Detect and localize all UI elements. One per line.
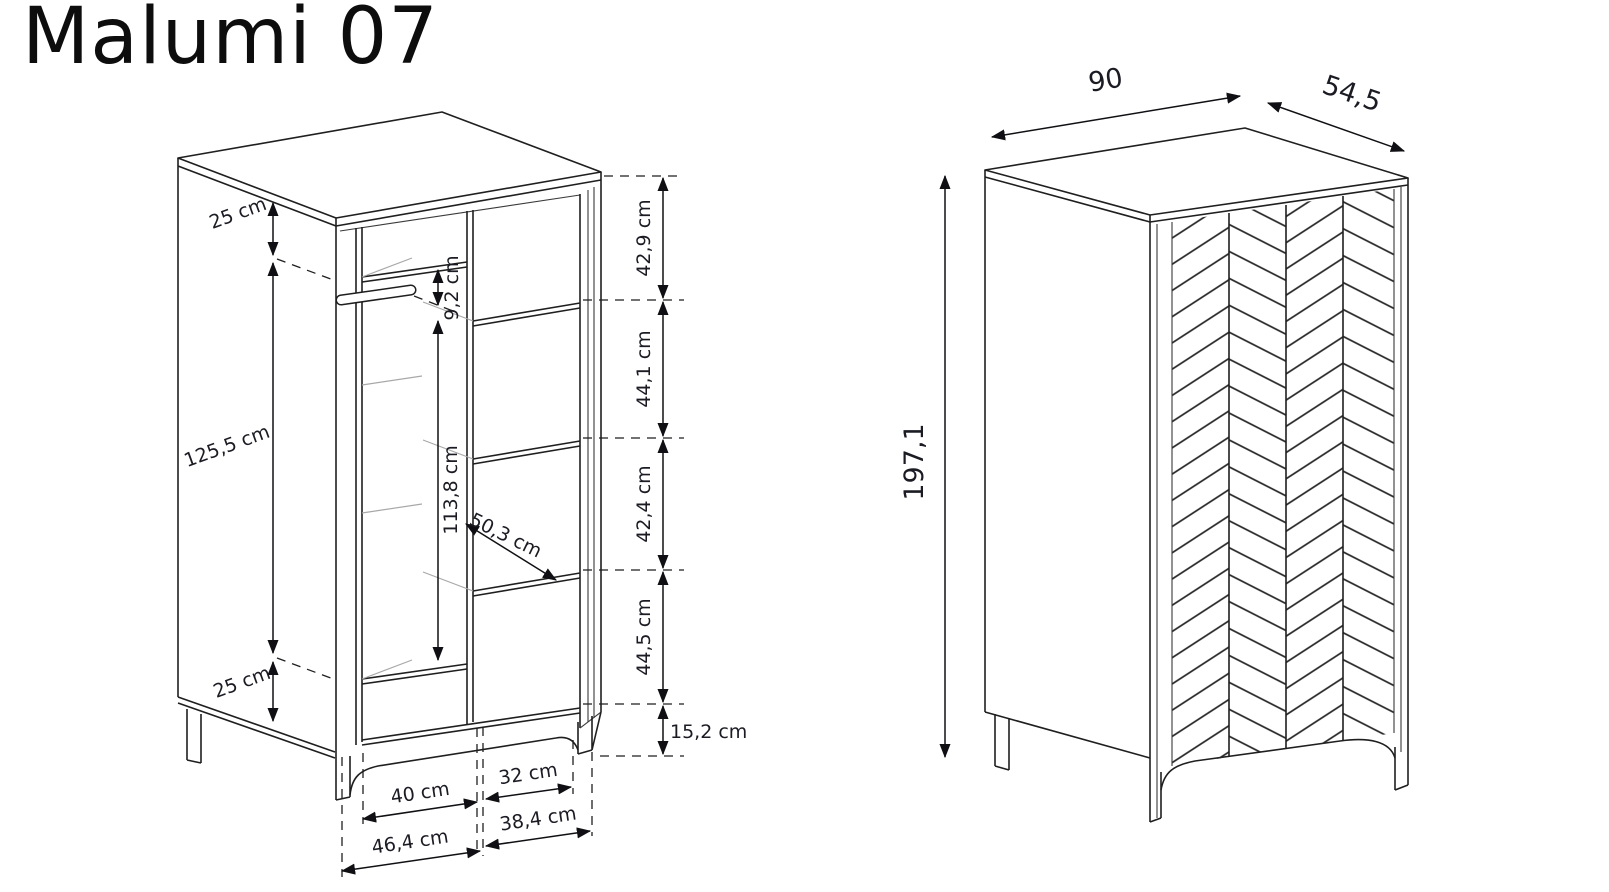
- dim-gap-2: 44,1 cm: [633, 330, 655, 407]
- door-chevron-column-1: [1172, 213, 1229, 766]
- door-chevron-column-4: [1343, 189, 1394, 741]
- exterior-view: 90 54,5 197,1: [899, 62, 1408, 822]
- dim-left-inner-width: 40 cm: [389, 778, 451, 809]
- dim-gap-1: 42,9 cm: [633, 199, 655, 276]
- dim-right-outer-width: 38,4 cm: [498, 802, 578, 835]
- dim-hanging-section: 125,5 cm: [181, 421, 273, 472]
- dim-shelf-depth: 50,3 cm: [466, 509, 545, 563]
- dim-left-outer-width: 46,4 cm: [370, 825, 450, 858]
- door-chevron-column-2: [1229, 205, 1286, 757]
- dim-gap-3: 42,4 cm: [633, 465, 655, 542]
- door-chevron-column-3: [1286, 196, 1343, 749]
- dim-overall-depth: 54,5: [1318, 70, 1385, 119]
- dim-plinth-height: 15,2 cm: [670, 721, 747, 743]
- dim-gap-4: 44,5 cm: [633, 598, 655, 675]
- interior-shelves: [362, 258, 580, 684]
- dim-bottom-section: 25 cm: [210, 662, 273, 703]
- interior-view: 25 cm 125,5 cm 25 cm 9,2 cm 113,8 cm 50,…: [178, 112, 747, 877]
- herringbone-doors: [1172, 189, 1394, 766]
- dim-overall-height: 197,1: [899, 423, 930, 500]
- dim-overall-width: 90: [1086, 62, 1125, 98]
- wardrobe-drawing-svg: 25 cm 125,5 cm 25 cm 9,2 cm 113,8 cm 50,…: [0, 0, 1609, 892]
- dim-right-inner-width: 32 cm: [497, 759, 559, 790]
- interior-legs: [336, 712, 601, 800]
- dim-rod-drop: 9,2 cm: [441, 255, 463, 320]
- dim-top-section: 25 cm: [206, 193, 269, 234]
- technical-drawing-page: Malumi 07: [0, 0, 1609, 892]
- dim-hanging-height: 113,8 cm: [440, 445, 462, 534]
